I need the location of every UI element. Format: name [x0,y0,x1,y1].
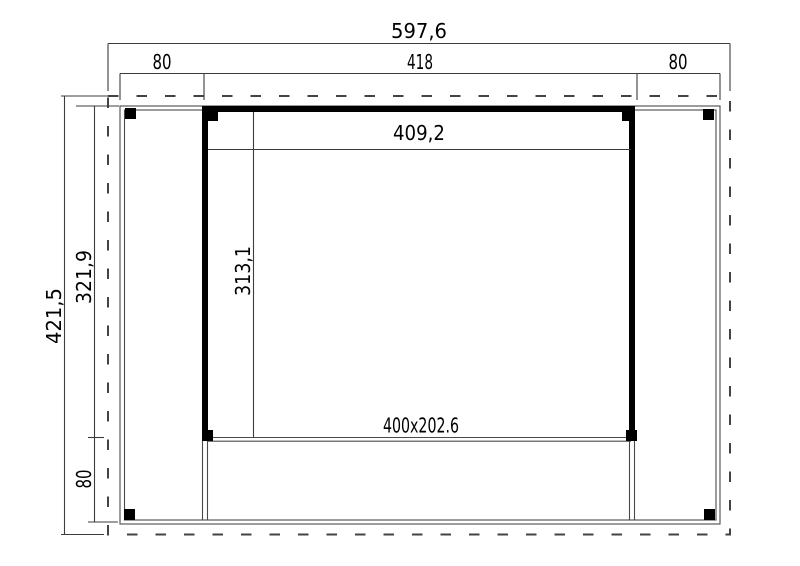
post-cabin-top-left [207,110,218,121]
post-cabin-bottom-left [202,430,213,441]
floor-plan-drawing: 597,6 80 418 80 421,5 321,9 80 409,2 313… [0,0,800,566]
dim-overall-width-label: 597,6 [391,19,447,43]
wall-top [202,106,635,112]
floor-plan-canvas: 597,6 80 418 80 421,5 321,9 80 409,2 313… [0,0,800,566]
wall-right [629,106,635,441]
roof-outline-dashed [108,96,730,535]
wall-left [202,106,208,441]
front-opening-label: 400x202.6 [383,414,459,438]
post-deck-bottom-right [704,509,715,520]
deck-outline-inner [125,110,717,520]
dim-inner-depth-label: 313,1 [231,246,255,296]
dim-room-depth-label: 321,9 [72,250,96,304]
dim-overhang-right-label: 80 [669,50,688,74]
post-deck-top-left [125,108,136,119]
post-deck-bottom-left [124,509,135,520]
dim-body-width-label: 418 [407,50,433,74]
dim-inner-width-label: 409,2 [393,121,445,145]
post-cabin-bottom-right [626,430,637,441]
post-cabin-top-right [622,110,633,121]
dim-overall-depth-label: 421,5 [42,288,66,344]
dim-deck-depth-label: 80 [72,470,96,489]
post-deck-top-right [703,109,714,120]
dim-overhang-left-label: 80 [153,50,172,74]
